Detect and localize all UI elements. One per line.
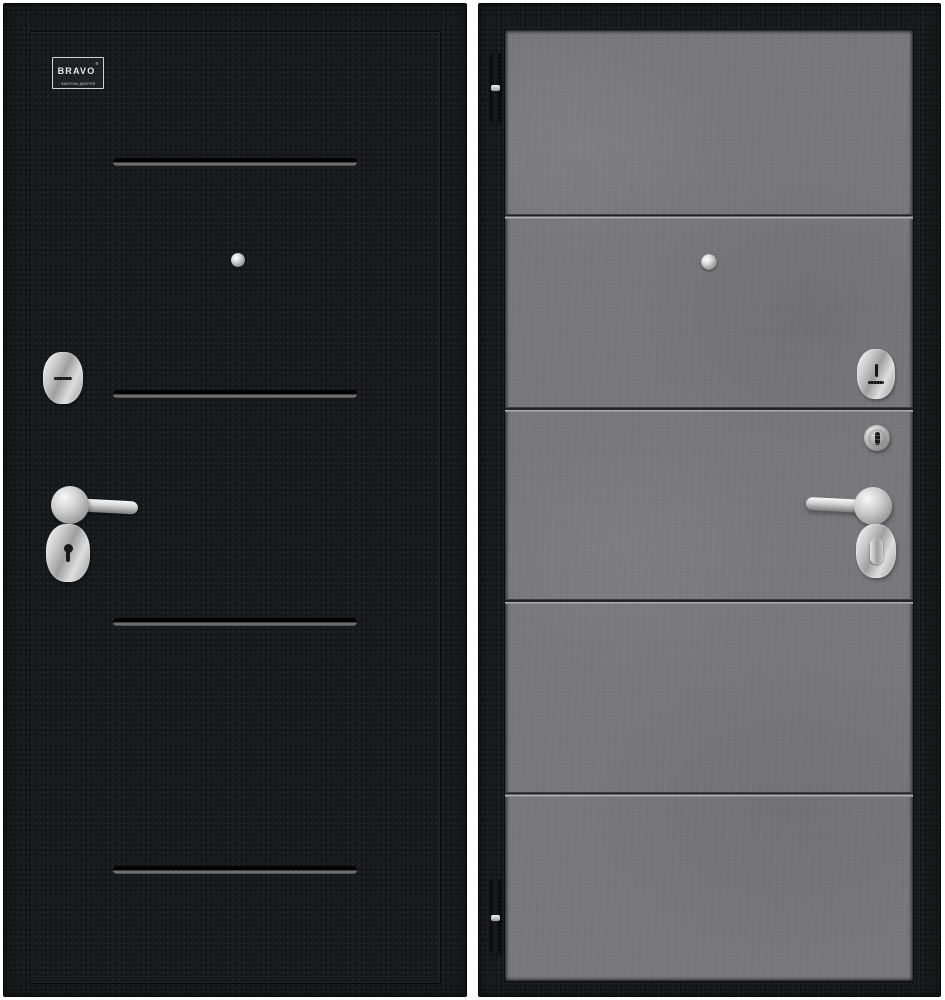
- keyhole-slot: [66, 551, 70, 562]
- decor-groove: [113, 866, 357, 874]
- keyhole-escutcheon-icon: [46, 524, 90, 582]
- brand-logo-tagline: ФАБРИКА ДВЕРЕЙ: [58, 81, 97, 85]
- decor-groove: [505, 792, 913, 797]
- hinge-top-icon: [490, 52, 501, 123]
- night-latch-escutcheon-icon: [857, 349, 895, 399]
- hinge-band: [491, 915, 500, 921]
- keyhole: [64, 544, 73, 562]
- thumbturn-lever: [870, 538, 883, 564]
- decor-groove: [505, 214, 913, 219]
- decor-groove: [113, 618, 357, 626]
- decor-groove: [505, 599, 913, 604]
- thumbturn-escutcheon-icon: [856, 524, 896, 578]
- peephole-icon: [231, 253, 245, 267]
- thumbturn-knob-face: [868, 429, 886, 447]
- decor-groove: [113, 390, 357, 398]
- door-product-photo: BRAVO® ФАБРИКА ДВЕРЕЙ: [0, 0, 945, 1000]
- door-interior-view: [478, 3, 941, 997]
- thumbturn-knob-icon: [864, 425, 890, 451]
- door-exterior-view: BRAVO® ФАБРИКА ДВЕРЕЙ: [3, 3, 467, 997]
- thumbturn-slot: [875, 432, 880, 445]
- decor-groove: [505, 407, 913, 412]
- brand-logo-row: BRAVO®: [55, 61, 101, 79]
- decor-groove: [113, 158, 357, 166]
- hinge-bottom-icon: [490, 878, 501, 954]
- latch-slot-vertical: [875, 364, 878, 377]
- keyhole-slot: [54, 377, 72, 380]
- brand-logo-trademark: ®: [95, 61, 98, 66]
- handle-rose-icon: [51, 486, 89, 524]
- brand-logo: BRAVO® ФАБРИКА ДВЕРЕЙ: [52, 57, 104, 89]
- peephole-icon: [701, 254, 717, 270]
- cylinder-escutcheon-icon: [43, 352, 83, 404]
- brand-logo-text: BRAVO: [58, 66, 96, 76]
- handle-rose-icon: [854, 487, 892, 525]
- latch-slot-horizontal: [868, 381, 884, 384]
- hinge-band: [491, 85, 500, 91]
